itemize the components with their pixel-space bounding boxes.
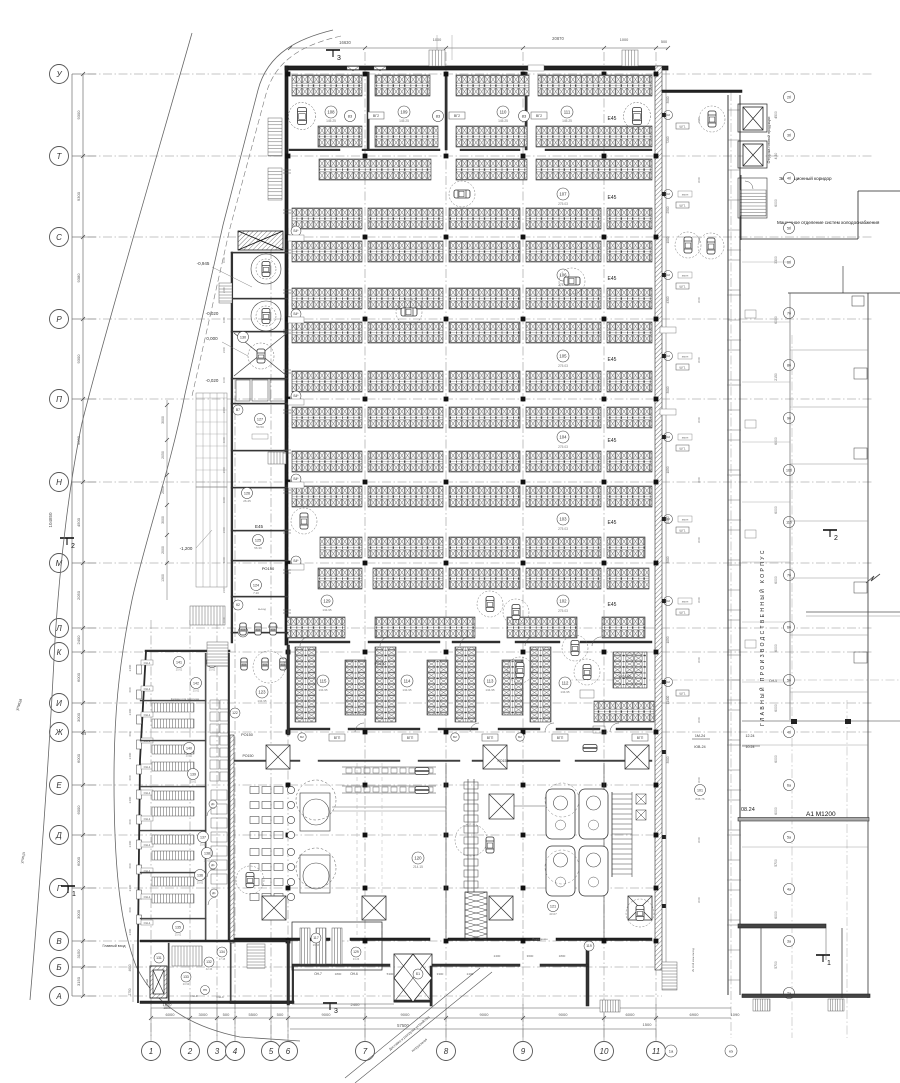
svg-text:ШГ1: ШГ1 — [679, 125, 685, 129]
svg-text:У: У — [55, 70, 62, 79]
svg-text:108: 108 — [327, 110, 335, 115]
svg-text:134.95: 134.95 — [322, 608, 332, 612]
svg-text:РО150: РО150 — [374, 662, 385, 666]
svg-text:2400: 2400 — [222, 346, 226, 353]
svg-text:104: 104 — [559, 435, 567, 440]
svg-text:130: 130 — [240, 335, 246, 339]
svg-text:43.07: 43.07 — [549, 912, 557, 916]
svg-text:54.50: 54.50 — [256, 425, 264, 429]
svg-text:Е45: Е45 — [608, 357, 617, 363]
svg-text:26.45: 26.45 — [243, 499, 251, 503]
svg-text:Е45: Е45 — [608, 520, 617, 526]
svg-text:134.95: 134.95 — [402, 688, 412, 692]
svg-text:амин: амин — [682, 355, 689, 359]
svg-text:5500: 5500 — [249, 1012, 259, 1017]
svg-text:ШГ1: ШГ1 — [679, 529, 685, 533]
svg-text:-0,945: -0,945 — [197, 261, 210, 266]
svg-text:6000: 6000 — [774, 755, 778, 763]
svg-text:3000: 3000 — [697, 716, 701, 723]
svg-text:А: А — [55, 992, 61, 1001]
svg-text:3000: 3000 — [697, 656, 701, 663]
svg-text:-1,200: -1,200 — [180, 546, 193, 551]
svg-text:ОН-1: ОН-1 — [144, 843, 151, 847]
svg-text:1000: 1000 — [222, 616, 226, 623]
svg-text:2400: 2400 — [128, 708, 132, 715]
svg-text:2050: 2050 — [161, 451, 165, 459]
svg-text:25.62: 25.62 — [204, 859, 211, 863]
svg-text:2150: 2150 — [774, 373, 778, 381]
svg-text:3000: 3000 — [666, 756, 670, 763]
svg-text:кэ: кэ — [729, 1048, 733, 1053]
svg-text:2400: 2400 — [222, 466, 226, 473]
svg-text:ОН-1: ОН-1 — [144, 921, 151, 925]
svg-text:10: 10 — [600, 1047, 609, 1056]
svg-text:Н: Н — [56, 478, 62, 487]
svg-text:16630: 16630 — [339, 40, 351, 45]
svg-text:141: 141 — [176, 660, 182, 664]
svg-text:амин: амин — [682, 193, 689, 197]
svg-text:ВГ2: ВГ2 — [536, 114, 542, 118]
svg-text:7200: 7200 — [666, 136, 670, 143]
svg-text:3000: 3000 — [697, 176, 701, 183]
svg-text:2400: 2400 — [222, 286, 226, 293]
svg-text:1: 1 — [827, 960, 831, 967]
svg-text:9000: 9000 — [559, 1012, 569, 1017]
svg-text:3300: 3300 — [437, 972, 444, 976]
svg-text:1050: 1050 — [666, 466, 670, 473]
svg-text:РО150: РО150 — [619, 675, 631, 679]
svg-text:Б4*: Б4* — [293, 394, 299, 398]
svg-text:1: 1 — [72, 891, 76, 898]
svg-text:600: 600 — [128, 731, 132, 736]
svg-text:6000: 6000 — [774, 911, 778, 919]
svg-text:6б: 6б — [787, 625, 791, 629]
svg-text:3000: 3000 — [666, 556, 670, 563]
svg-text:134.95: 134.95 — [485, 688, 495, 692]
svg-text:Е: Е — [56, 781, 62, 790]
svg-text:7.20: 7.20 — [253, 591, 259, 595]
svg-text:РО150: РО150 — [497, 759, 508, 763]
svg-text:Д1: Д1 — [211, 863, 215, 867]
svg-text:К2: К2 — [236, 603, 240, 607]
svg-text:амин: амин — [682, 436, 689, 440]
svg-text:Е45: Е45 — [255, 524, 264, 529]
svg-text:600: 600 — [128, 775, 132, 780]
svg-text:3600: 3600 — [527, 954, 534, 958]
svg-text:Б4*: Б4* — [293, 477, 299, 481]
svg-text:9000: 9000 — [322, 1012, 332, 1017]
svg-text:С2: С2 — [666, 435, 670, 439]
svg-text:-0,020: -0,020 — [206, 311, 219, 316]
svg-text:3: 3 — [334, 1008, 338, 1015]
svg-text:В7: В7 — [236, 408, 240, 412]
svg-text:3000: 3000 — [76, 909, 81, 919]
svg-text:С: С — [56, 233, 62, 242]
svg-text:4а: 4а — [787, 887, 791, 891]
svg-text:Д: Д — [55, 831, 62, 840]
svg-text:6000: 6000 — [774, 704, 778, 712]
svg-text:2б: 2б — [787, 95, 791, 99]
svg-text:138: 138 — [204, 851, 210, 855]
svg-text:83: 83 — [348, 113, 353, 118]
svg-text:3000: 3000 — [697, 296, 701, 303]
svg-text:4500: 4500 — [76, 517, 81, 527]
svg-text:17.48: 17.48 — [219, 957, 226, 961]
svg-text:9б: 9б — [787, 416, 791, 420]
svg-text:500: 500 — [661, 40, 667, 44]
svg-text:105: 105 — [559, 354, 567, 359]
svg-text:275.03: 275.03 — [558, 609, 568, 613]
svg-text:142: 142 — [193, 681, 199, 685]
svg-text:134.95: 134.95 — [257, 699, 267, 703]
svg-text:2400: 2400 — [128, 796, 132, 803]
svg-text:3000: 3000 — [697, 536, 701, 543]
svg-text:Р: Р — [56, 315, 62, 324]
svg-text:4: 4 — [233, 1047, 238, 1056]
svg-text:3000: 3000 — [697, 596, 701, 603]
svg-text:3000: 3000 — [697, 476, 701, 483]
svg-text:РО150: РО150 — [241, 733, 253, 737]
svg-text:ОН-1: ОН-1 — [144, 661, 151, 665]
svg-text:600: 600 — [128, 907, 132, 912]
svg-text:214.15: 214.15 — [413, 865, 423, 869]
svg-text:2000: 2000 — [161, 486, 165, 494]
svg-text:9380: 9380 — [76, 273, 81, 283]
svg-text:131: 131 — [156, 956, 162, 960]
svg-text:амин: амин — [682, 518, 689, 522]
svg-text:6а: 6а — [787, 783, 791, 787]
svg-text:7б: 7б — [787, 311, 791, 315]
svg-text:6000: 6000 — [774, 199, 778, 207]
svg-text:600: 600 — [128, 819, 132, 824]
svg-text:2500: 2500 — [666, 206, 670, 213]
svg-text:С2: С2 — [666, 680, 670, 684]
svg-text:275.03: 275.03 — [558, 364, 568, 368]
svg-text:Карман для разгрузки: Карман для разгрузки — [171, 697, 200, 701]
svg-text:2400: 2400 — [128, 928, 132, 935]
svg-text:4б: 4б — [787, 730, 791, 734]
svg-text:6900: 6900 — [690, 1012, 700, 1017]
svg-text:9300: 9300 — [76, 110, 81, 120]
svg-text:2400: 2400 — [128, 840, 132, 847]
svg-text:2400: 2400 — [222, 586, 226, 593]
svg-text:600: 600 — [128, 863, 132, 868]
svg-text:Б1: Б1 — [416, 972, 420, 976]
svg-text:3000: 3000 — [666, 96, 670, 103]
svg-text:134.95: 134.95 — [560, 690, 570, 694]
svg-text:ШГ1: ШГ1 — [679, 692, 685, 696]
svg-text:11: 11 — [652, 1047, 660, 1056]
svg-text:Из этой зоны выход: Из этой зоны выход — [691, 948, 695, 972]
svg-text:145.25: 145.25 — [498, 119, 508, 123]
svg-text:25.62: 25.62 — [175, 933, 182, 937]
svg-text:122: 122 — [232, 711, 238, 715]
svg-text:2: 2 — [187, 1047, 193, 1056]
svg-text:275.03: 275.03 — [558, 202, 568, 206]
svg-text:139: 139 — [190, 772, 196, 776]
svg-text:2400: 2400 — [494, 954, 501, 958]
svg-text:2400: 2400 — [76, 635, 81, 645]
svg-text:6000: 6000 — [774, 807, 778, 815]
svg-text:10б: 10б — [786, 468, 792, 472]
svg-text:1300: 1300 — [161, 574, 165, 582]
svg-text:9300: 9300 — [76, 191, 81, 201]
svg-text:134.95: 134.95 — [318, 688, 328, 692]
svg-text:133: 133 — [183, 975, 189, 979]
svg-text:ОН-1: ОН-1 — [144, 895, 151, 899]
svg-text:С2: С2 — [666, 599, 670, 603]
svg-text:25.62: 25.62 — [176, 668, 183, 672]
svg-text:ВГП: ВГП — [637, 736, 644, 740]
svg-text:2400: 2400 — [128, 664, 132, 671]
svg-text:ОН-1: ОН-1 — [144, 817, 151, 821]
svg-text:6000: 6000 — [774, 644, 778, 652]
svg-text:110: 110 — [500, 110, 507, 115]
svg-text:ВГП: ВГП — [334, 736, 341, 740]
svg-text:500: 500 — [277, 1012, 284, 1017]
svg-text:Б2: Б2 — [300, 735, 304, 739]
svg-text:119: 119 — [586, 944, 592, 948]
svg-text:08.24: 08.24 — [741, 807, 755, 813]
svg-text:145.25: 145.25 — [326, 119, 336, 123]
svg-text:4300: 4300 — [666, 296, 670, 303]
svg-text:3300: 3300 — [774, 256, 778, 264]
svg-text:1800: 1800 — [559, 954, 566, 958]
svg-text:ВГ2: ВГ2 — [454, 114, 460, 118]
svg-text:ВГП: ВГП — [407, 736, 414, 740]
svg-text:9000: 9000 — [401, 1012, 411, 1017]
svg-text:2400: 2400 — [222, 406, 226, 413]
svg-text:ОН-1: ОН-1 — [144, 687, 151, 691]
svg-text:25.62: 25.62 — [193, 689, 200, 693]
svg-text:Д1: Д1 — [212, 891, 216, 895]
svg-text:1000: 1000 — [222, 556, 226, 563]
svg-text:10.24: 10.24 — [746, 745, 755, 749]
svg-text:6000: 6000 — [76, 672, 81, 682]
svg-text:2: 2 — [71, 543, 75, 550]
svg-text:3б: 3б — [787, 133, 791, 137]
svg-text:5: 5 — [269, 1047, 274, 1056]
svg-text:7: 7 — [363, 1047, 368, 1056]
svg-text:Отгрузка готовой продукции: Отгрузка готовой продукции — [767, 117, 771, 164]
svg-text:Е45: Е45 — [608, 438, 617, 444]
svg-text:2050: 2050 — [76, 590, 81, 600]
svg-text:275.03: 275.03 — [558, 527, 568, 531]
svg-text:3000: 3000 — [697, 116, 701, 123]
svg-text:ОН-4: ОН-4 — [216, 995, 223, 999]
svg-text:4650: 4650 — [128, 964, 132, 971]
svg-text:33.26: 33.26 — [353, 957, 360, 961]
svg-text:ШГ1: ШГ1 — [679, 447, 685, 451]
svg-text:ОН-1: ОН-1 — [144, 765, 151, 769]
svg-text:Е45: Е45 — [608, 195, 617, 201]
svg-text:РО150: РО150 — [242, 754, 253, 758]
svg-text:С2: С2 — [666, 354, 670, 358]
svg-text:1000: 1000 — [620, 38, 628, 42]
svg-text:2000: 2000 — [161, 546, 165, 554]
svg-text:83: 83 — [522, 113, 527, 118]
svg-text:ОН-5: ОН-5 — [769, 679, 777, 683]
svg-text:6000: 6000 — [774, 576, 778, 584]
svg-text:9000: 9000 — [480, 1012, 490, 1017]
svg-text:275.03: 275.03 — [558, 445, 568, 449]
svg-text:Е45: Е45 — [608, 116, 617, 122]
svg-text:С2: С2 — [666, 113, 670, 117]
svg-text:амин: амин — [682, 600, 689, 604]
svg-text:9: 9 — [521, 1047, 526, 1056]
svg-text:111: 111 — [564, 110, 571, 115]
svg-text:134: 134 — [219, 950, 225, 954]
svg-text:600: 600 — [128, 687, 132, 692]
svg-text:20.93: 20.93 — [183, 982, 190, 986]
svg-text:Ж: Ж — [54, 728, 63, 737]
svg-text:П5: П5 — [203, 988, 207, 992]
svg-text:Б4*: Б4* — [293, 312, 299, 316]
svg-text:Б4*: Б4* — [293, 229, 299, 233]
svg-text:3000: 3000 — [697, 896, 701, 903]
svg-text:1800: 1800 — [163, 1006, 171, 1010]
svg-text:114: 114 — [404, 679, 411, 684]
svg-text:42.46: 42.46 — [206, 967, 213, 971]
svg-text:ШГ1: ШГ1 — [679, 204, 685, 208]
svg-text:3000: 3000 — [161, 516, 165, 524]
svg-text:1090: 1090 — [731, 1012, 741, 1017]
svg-text:25.62: 25.62 — [197, 881, 204, 885]
svg-text:1000: 1000 — [222, 316, 226, 323]
svg-text:4б: 4б — [787, 176, 791, 180]
svg-text:Б2: Б2 — [453, 735, 457, 739]
svg-text:1800: 1800 — [335, 972, 342, 976]
svg-text:11400: 11400 — [666, 695, 670, 704]
svg-text:С2: С2 — [666, 192, 670, 196]
svg-text:126: 126 — [244, 491, 250, 495]
svg-text:ГЛАВНЫЙ ПРОИЗВОДСТВЕННЫЙ КОРПУ: ГЛАВНЫЙ ПРОИЗВОДСТВЕННЫЙ КОРПУС — [758, 548, 766, 726]
svg-text:121: 121 — [550, 904, 556, 908]
svg-text:25.62: 25.62 — [190, 780, 197, 784]
svg-text:109: 109 — [400, 110, 408, 115]
svg-text:140: 140 — [186, 746, 192, 750]
svg-text:ОН-7: ОН-7 — [314, 972, 322, 976]
svg-text:129: 129 — [353, 950, 359, 954]
svg-text:Помещение: Помещение — [532, 937, 548, 941]
svg-text:Е45: Е45 — [608, 602, 617, 608]
svg-text:5700: 5700 — [774, 961, 778, 969]
svg-text:83: 83 — [436, 113, 441, 118]
svg-text:2400: 2400 — [222, 526, 226, 533]
svg-text:120: 120 — [414, 856, 422, 861]
svg-text:4460: 4460 — [666, 516, 670, 523]
svg-text:5300: 5300 — [387, 972, 394, 976]
svg-text:102: 102 — [559, 599, 567, 604]
svg-text:Главный вход: Главный вход — [102, 944, 126, 948]
svg-text:В: В — [56, 937, 62, 946]
svg-text:6000: 6000 — [774, 316, 778, 324]
svg-text:2400: 2400 — [351, 1002, 361, 1007]
svg-text:6000: 6000 — [626, 1012, 636, 1017]
svg-text:Б4*: Б4* — [293, 559, 299, 563]
svg-text:3000: 3000 — [666, 386, 670, 393]
svg-text:8б: 8б — [787, 363, 791, 367]
svg-text:6000: 6000 — [774, 506, 778, 514]
svg-text:20870: 20870 — [552, 36, 564, 41]
svg-text:137: 137 — [200, 835, 206, 839]
svg-text:8: 8 — [444, 1047, 449, 1056]
svg-text:115: 115 — [320, 679, 327, 684]
svg-text:А1 М1200: А1 М1200 — [806, 811, 836, 818]
svg-text:Б: Б — [56, 963, 61, 972]
svg-text:4,30: 4,30 — [774, 153, 778, 160]
svg-text:129: 129 — [323, 599, 331, 604]
svg-text:1000: 1000 — [222, 496, 226, 503]
svg-text:ВГ2: ВГ2 — [373, 114, 379, 118]
svg-text:6000: 6000 — [774, 437, 778, 445]
svg-text:12.24: 12.24 — [746, 734, 755, 738]
svg-text:выход: выход — [258, 607, 266, 611]
svg-text:РО150: РО150 — [262, 566, 275, 571]
svg-text:101: 101 — [697, 788, 703, 792]
svg-text:1000: 1000 — [222, 376, 226, 383]
svg-text:1050: 1050 — [666, 636, 670, 643]
svg-text:2400: 2400 — [128, 884, 132, 891]
svg-text:113: 113 — [487, 679, 494, 684]
svg-text:107: 107 — [559, 192, 567, 197]
svg-text:1000: 1000 — [222, 436, 226, 443]
svg-text:1: 1 — [149, 1047, 153, 1056]
svg-text:136: 136 — [197, 873, 203, 877]
svg-text:3000: 3000 — [161, 416, 165, 424]
svg-text:П: П — [56, 395, 62, 404]
svg-text:3000: 3000 — [697, 416, 701, 423]
svg-text:25.62: 25.62 — [186, 754, 193, 758]
svg-text:Е45: Е45 — [608, 276, 617, 282]
svg-text:ШГ1: ШГ1 — [679, 611, 685, 615]
svg-text:3000: 3000 — [697, 236, 701, 243]
svg-text:2750: 2750 — [128, 988, 132, 995]
svg-text:56.36: 56.36 — [254, 546, 262, 550]
svg-text:6б: 6б — [787, 260, 791, 264]
svg-text:0,000: 0,000 — [206, 336, 218, 341]
svg-text:ВГП: ВГП — [487, 736, 494, 740]
svg-text:5700: 5700 — [774, 859, 778, 867]
svg-text:25.62: 25.62 — [209, 668, 216, 672]
svg-text:103: 103 — [559, 517, 567, 522]
svg-text:5б: 5б — [787, 678, 791, 682]
svg-text:124: 124 — [253, 583, 259, 587]
svg-text:Тамб: Тамб — [145, 978, 149, 985]
svg-text:Б2: Б2 — [518, 735, 522, 739]
svg-text:2400: 2400 — [128, 752, 132, 759]
svg-text:ЮВ-24: ЮВ-24 — [694, 745, 705, 749]
svg-text:1000: 1000 — [666, 236, 670, 243]
svg-text:ОН-3: ОН-3 — [190, 994, 197, 998]
svg-text:3000: 3000 — [76, 712, 81, 722]
svg-text:6000: 6000 — [76, 805, 81, 815]
svg-text:5б: 5б — [787, 226, 791, 230]
svg-text:3000: 3000 — [199, 1012, 209, 1017]
svg-text:амин: амин — [682, 274, 689, 278]
svg-text:6000: 6000 — [166, 1012, 176, 1017]
svg-text:3а: 3а — [787, 939, 791, 943]
svg-text:1500: 1500 — [643, 1022, 653, 1027]
svg-text:Д1: Д1 — [211, 802, 215, 806]
svg-text:1а: 1а — [669, 1048, 674, 1053]
svg-text:9300: 9300 — [76, 354, 81, 364]
svg-text:3000: 3000 — [697, 776, 701, 783]
svg-text:135: 135 — [175, 925, 181, 929]
svg-text:3150: 3150 — [76, 949, 81, 959]
svg-text:И: И — [56, 699, 62, 708]
svg-text:123: 123 — [258, 690, 266, 695]
